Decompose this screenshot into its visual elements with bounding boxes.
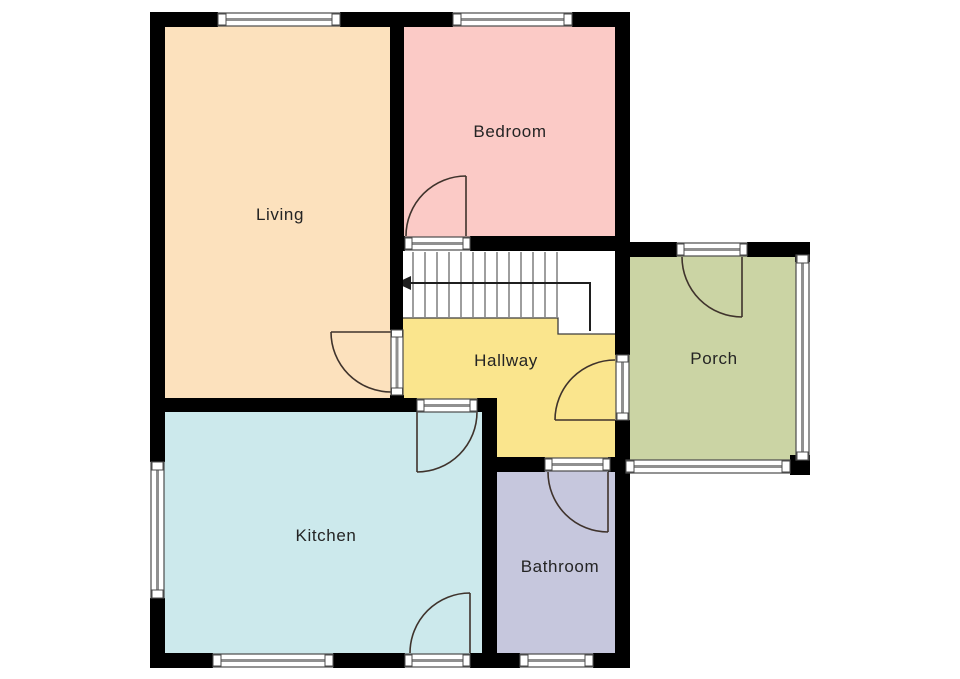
wall-segment [390, 12, 404, 251]
window-porch-right [796, 255, 809, 460]
bathroom-door-threshold [545, 458, 610, 471]
window-living-top [218, 13, 340, 26]
bedroom-door-threshold [405, 237, 470, 250]
wall-segment [615, 12, 630, 355]
floor-plan-canvas: Living Bedroom Hallway Porch Kitchen Bat… [0, 0, 960, 679]
label-hallway: Hallway [474, 351, 538, 370]
porch-door-threshold [677, 243, 747, 256]
wall-segment [390, 251, 403, 330]
floor-plan: Living Bedroom Hallway Porch Kitchen Bat… [0, 0, 960, 679]
wall-segment [482, 398, 497, 668]
label-kitchen: Kitchen [296, 526, 357, 545]
window-porch-bottom [626, 460, 790, 473]
wall-segment [150, 653, 213, 668]
kitchen-ext-door-threshold [405, 654, 470, 667]
label-bathroom: Bathroom [521, 557, 600, 576]
label-porch: Porch [690, 349, 737, 368]
front-door-threshold [616, 355, 629, 420]
wall-segment [390, 236, 405, 251]
wall-segment [150, 12, 165, 462]
window-bedroom-top [453, 13, 572, 26]
label-bedroom: Bedroom [473, 122, 546, 141]
room-fills [157, 20, 803, 661]
wall-segment [150, 398, 417, 412]
window-kitchen-bottom [213, 654, 333, 667]
wall-segment [333, 653, 405, 668]
kitchen-door-threshold [417, 399, 477, 412]
wall-segment [470, 236, 630, 251]
window-bathroom-bottom [520, 654, 593, 667]
wall-segment [482, 457, 545, 472]
label-living: Living [256, 205, 304, 224]
wall-segment [747, 242, 797, 257]
window-kitchen-left [151, 462, 164, 598]
living-door-threshold [391, 330, 403, 395]
wall-segment [620, 242, 677, 257]
